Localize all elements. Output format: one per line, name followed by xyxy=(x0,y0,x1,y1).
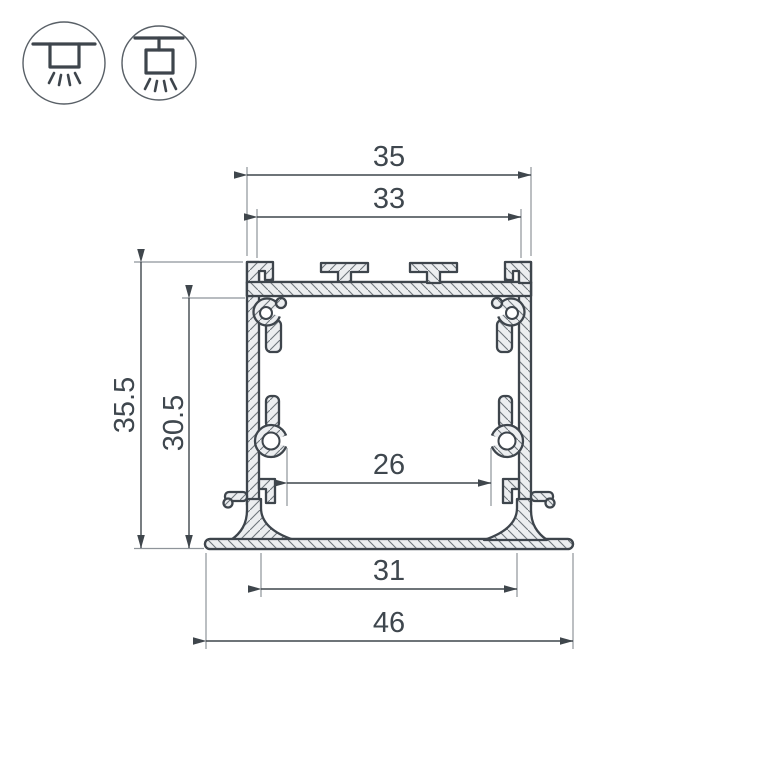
dimension-label-35-5: 35.5 xyxy=(109,377,141,433)
dimension-label-31: 31 xyxy=(373,555,405,587)
profile-body xyxy=(205,262,573,549)
icon-circle xyxy=(23,22,105,104)
dimension-height-internal: 30.5 xyxy=(158,298,245,548)
drawing-page: 35 33 35.5 30.5 26 31 46 xyxy=(0,0,767,767)
dimension-width-internal: 26 xyxy=(287,448,491,506)
pendant-housing xyxy=(146,50,173,73)
dimension-label-26: 26 xyxy=(373,449,405,481)
foot-barb-curl xyxy=(224,499,233,508)
dimension-label-35: 35 xyxy=(373,141,405,173)
foot xyxy=(231,499,294,540)
dimension-label-46: 46 xyxy=(373,607,405,639)
top-corner-lip xyxy=(247,262,273,283)
recessed-mount-icon xyxy=(23,22,105,104)
side-wall xyxy=(247,262,259,505)
mid-clip-finger xyxy=(266,396,279,428)
light-rays xyxy=(49,73,80,85)
profile-technical-drawing: 35 33 35.5 30.5 26 31 46 xyxy=(0,0,767,767)
dimension-label-33: 33 xyxy=(373,183,405,215)
recessed-housing xyxy=(50,44,79,67)
light-rays xyxy=(145,79,176,91)
upper-clip-tip xyxy=(276,298,286,308)
dimension-label-30-5: 30.5 xyxy=(158,395,190,451)
pendant-mount-icon xyxy=(122,26,196,100)
dimension-width-recess: 31 xyxy=(261,553,517,597)
t-stud xyxy=(321,263,368,283)
dimension-top-opening: 33 xyxy=(257,183,521,258)
